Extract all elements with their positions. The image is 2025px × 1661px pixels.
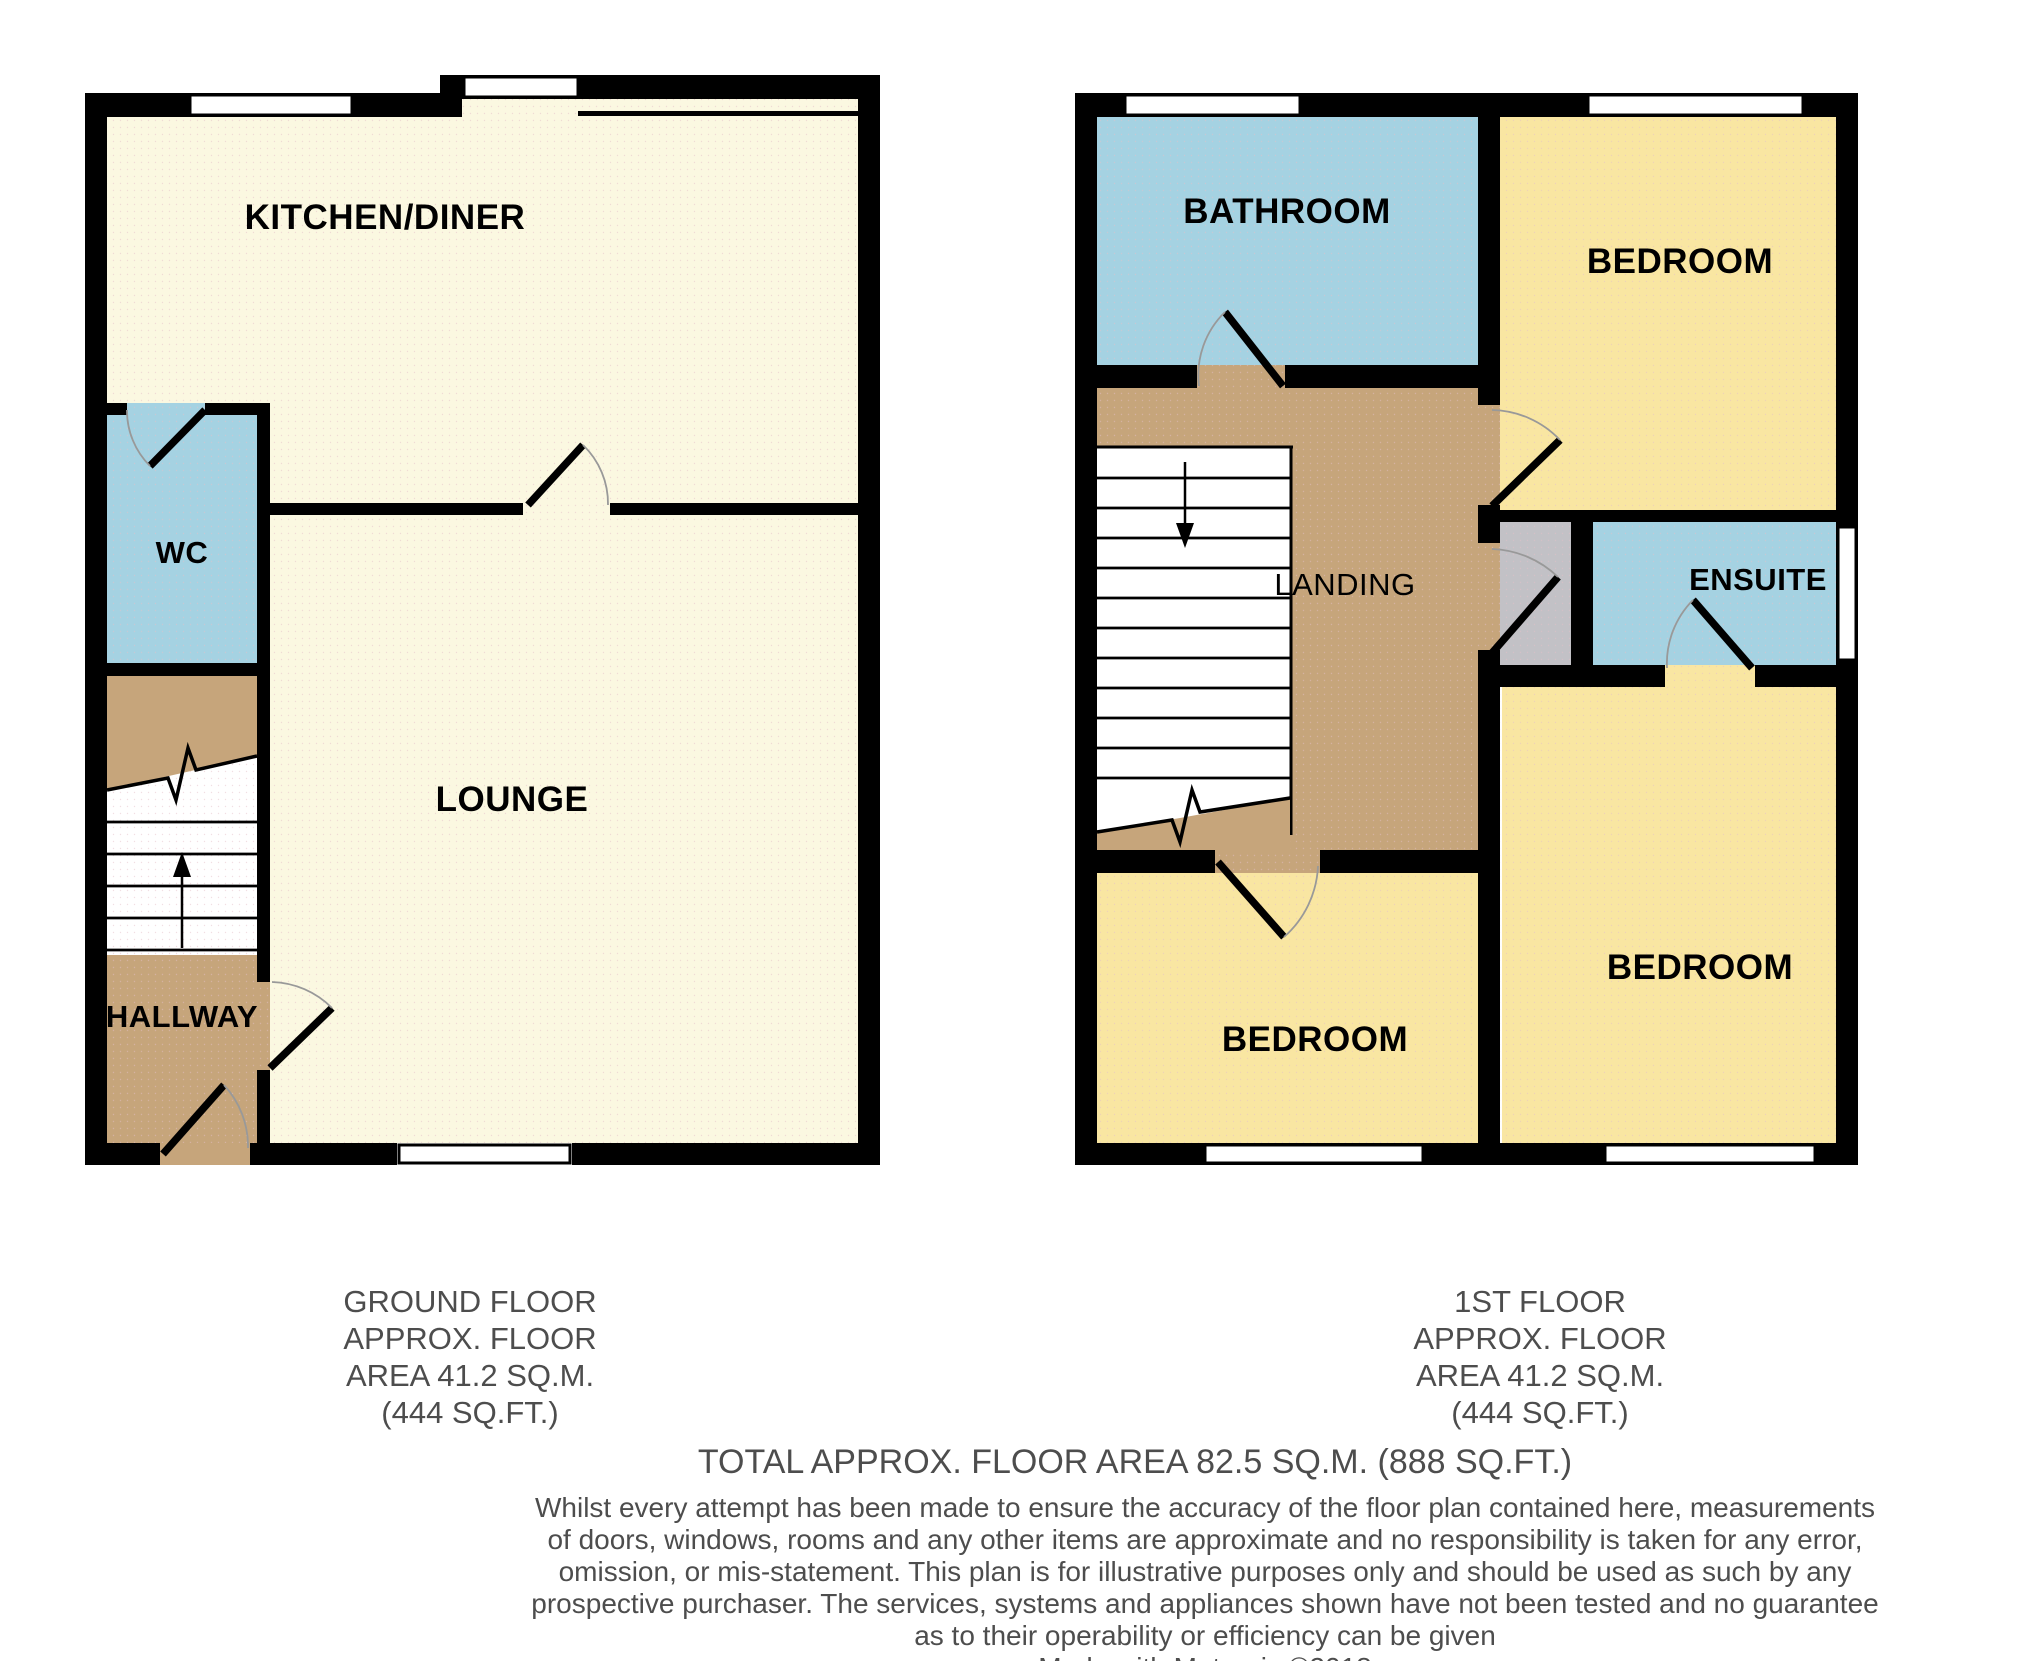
ground-caption-line-3: AREA 41.2 SQ.M. [343, 1357, 596, 1394]
ground-dot-texture [107, 99, 858, 1143]
lounge-window [399, 1145, 570, 1163]
lounge-label: LOUNGE [436, 780, 589, 820]
first-caption-line-4: (444 SQ.FT.) [1413, 1394, 1666, 1431]
first-caption-line-2: APPROX. FLOOR [1413, 1320, 1666, 1357]
disclaimer-line-1: Whilst every attempt has been made to en… [531, 1492, 1878, 1524]
disclaimer-line-3: omission, or mis-statement. This plan is… [531, 1556, 1878, 1588]
kitchen-window-right [464, 77, 578, 97]
first-caption-line-1: 1ST FLOOR [1413, 1283, 1666, 1320]
bedroom-bl-window [1205, 1145, 1423, 1163]
bedroom-bottom-right-label: BEDROOM [1607, 948, 1793, 988]
disclaimer-line-5: as to their operability or efficiency ca… [531, 1620, 1878, 1652]
ground-caption-line-2: APPROX. FLOOR [343, 1320, 596, 1357]
total-area-line: TOTAL APPROX. FLOOR AREA 82.5 SQ.M. (888… [698, 1443, 1572, 1482]
hallway-label: HALLWAY [106, 999, 258, 1035]
ground-floor-caption: GROUND FLOOR APPROX. FLOOR AREA 41.2 SQ.… [343, 1283, 596, 1431]
disclaimer-line-4: prospective purchaser. The services, sys… [531, 1588, 1878, 1620]
bedroom-top-label: BEDROOM [1587, 242, 1773, 282]
floorplan-page: KITCHEN/DINER WC LOUNGE HALLWAY BATHROOM… [0, 0, 2025, 1661]
ground-caption-line-1: GROUND FLOOR [343, 1283, 596, 1320]
bedroom-br-window [1605, 1145, 1815, 1163]
disclaimer-line-2: of doors, windows, rooms and any other i… [531, 1524, 1878, 1556]
disclaimer: Whilst every attempt has been made to en… [531, 1492, 1878, 1661]
wc-label: WC [156, 535, 209, 571]
bathroom-label: BATHROOM [1183, 192, 1391, 232]
ensuite-label: ENSUITE [1689, 562, 1827, 598]
first-stairs [1097, 447, 1293, 850]
metropix-credit: Made with Metropix ©2018 [531, 1652, 1878, 1661]
ground-caption-line-4: (444 SQ.FT.) [343, 1394, 596, 1431]
first-caption-line-3: AREA 41.2 SQ.M. [1413, 1357, 1666, 1394]
kitchen-diner-label: KITCHEN/DINER [245, 198, 526, 238]
bedroom-bottom-left-label: BEDROOM [1222, 1020, 1408, 1060]
bedroom-top-window [1588, 95, 1803, 115]
landing-label: LANDING [1274, 567, 1415, 603]
bathroom-window [1125, 95, 1300, 115]
ensuite-window [1838, 527, 1856, 660]
first-floor-caption: 1ST FLOOR APPROX. FLOOR AREA 41.2 SQ.M. … [1413, 1283, 1666, 1431]
kitchen-window-left [190, 95, 352, 115]
